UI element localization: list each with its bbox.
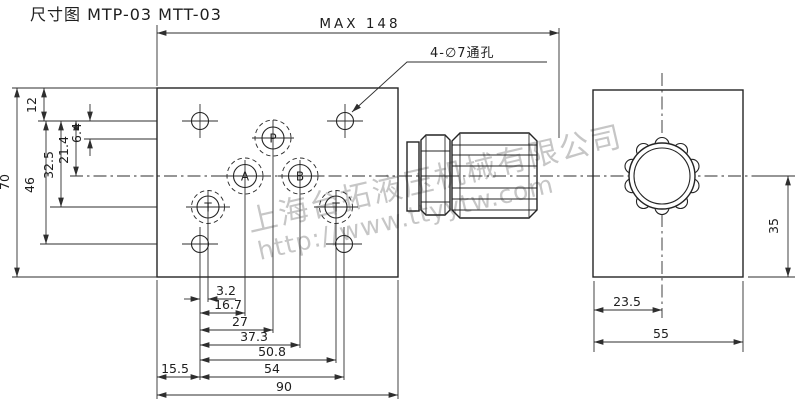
knob-front-face — [625, 138, 699, 215]
callout-label: 4-∅7通孔 — [430, 46, 495, 61]
drawing-title: 尺寸图 MTP-03 MTT-03 — [30, 5, 222, 24]
dim-46-label: 46 — [22, 177, 37, 193]
port-p-label: P — [269, 132, 276, 146]
knob-outer-circle — [629, 143, 695, 209]
port-t-left-label: T — [203, 201, 212, 215]
dim-16-7-label: 16.7 — [214, 297, 242, 312]
port-t-right-label: T — [331, 201, 340, 215]
callout-leader — [352, 62, 547, 112]
dim-15-5-label: 15.5 — [161, 361, 189, 376]
port-b-label: B — [296, 170, 304, 184]
dim-max148-label: MAX 148 — [319, 16, 400, 32]
dim-70-label: 70 — [0, 174, 12, 190]
side-view — [593, 73, 743, 318]
dim-35-label: 35 — [766, 218, 781, 234]
port-a-label: A — [241, 170, 250, 184]
watermark: 上海台拓液压机械有限公司 http://www.ttyytw.com — [244, 119, 626, 266]
drawing-svg: 上海台拓液压机械有限公司 http://www.ttyytw.com — [0, 0, 800, 411]
dim-23-5-label: 23.5 — [613, 294, 641, 309]
dim-3-2-label: 3.2 — [216, 283, 236, 298]
dim-32-5-label: 32.5 — [41, 151, 56, 179]
dim-90-label: 90 — [276, 379, 292, 394]
dim-27-label: 27 — [232, 314, 248, 329]
dim-12-label: 12 — [24, 97, 39, 113]
dim-6-4-label: 6.4 — [69, 123, 84, 143]
dimension-drawing: 上海台拓液压机械有限公司 http://www.ttyytw.com — [0, 0, 800, 411]
dim-55-label: 55 — [653, 326, 669, 341]
dim-37-3-label: 37.3 — [240, 329, 268, 344]
dim-50-8-label: 50.8 — [258, 344, 286, 359]
dim-54-label: 54 — [264, 361, 280, 376]
